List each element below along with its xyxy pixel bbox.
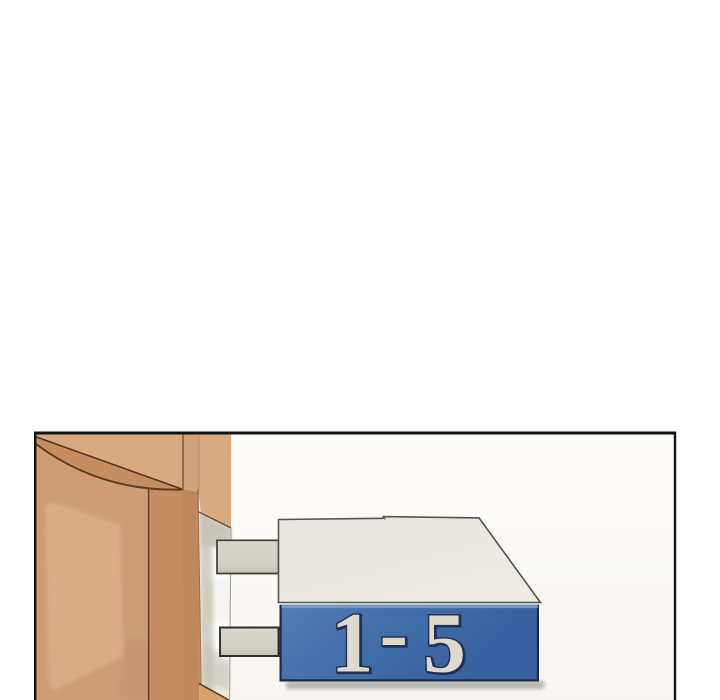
svg-text:1: 1 xyxy=(331,597,374,691)
svg-text:5: 5 xyxy=(423,597,466,691)
svg-text:-: - xyxy=(380,587,408,681)
